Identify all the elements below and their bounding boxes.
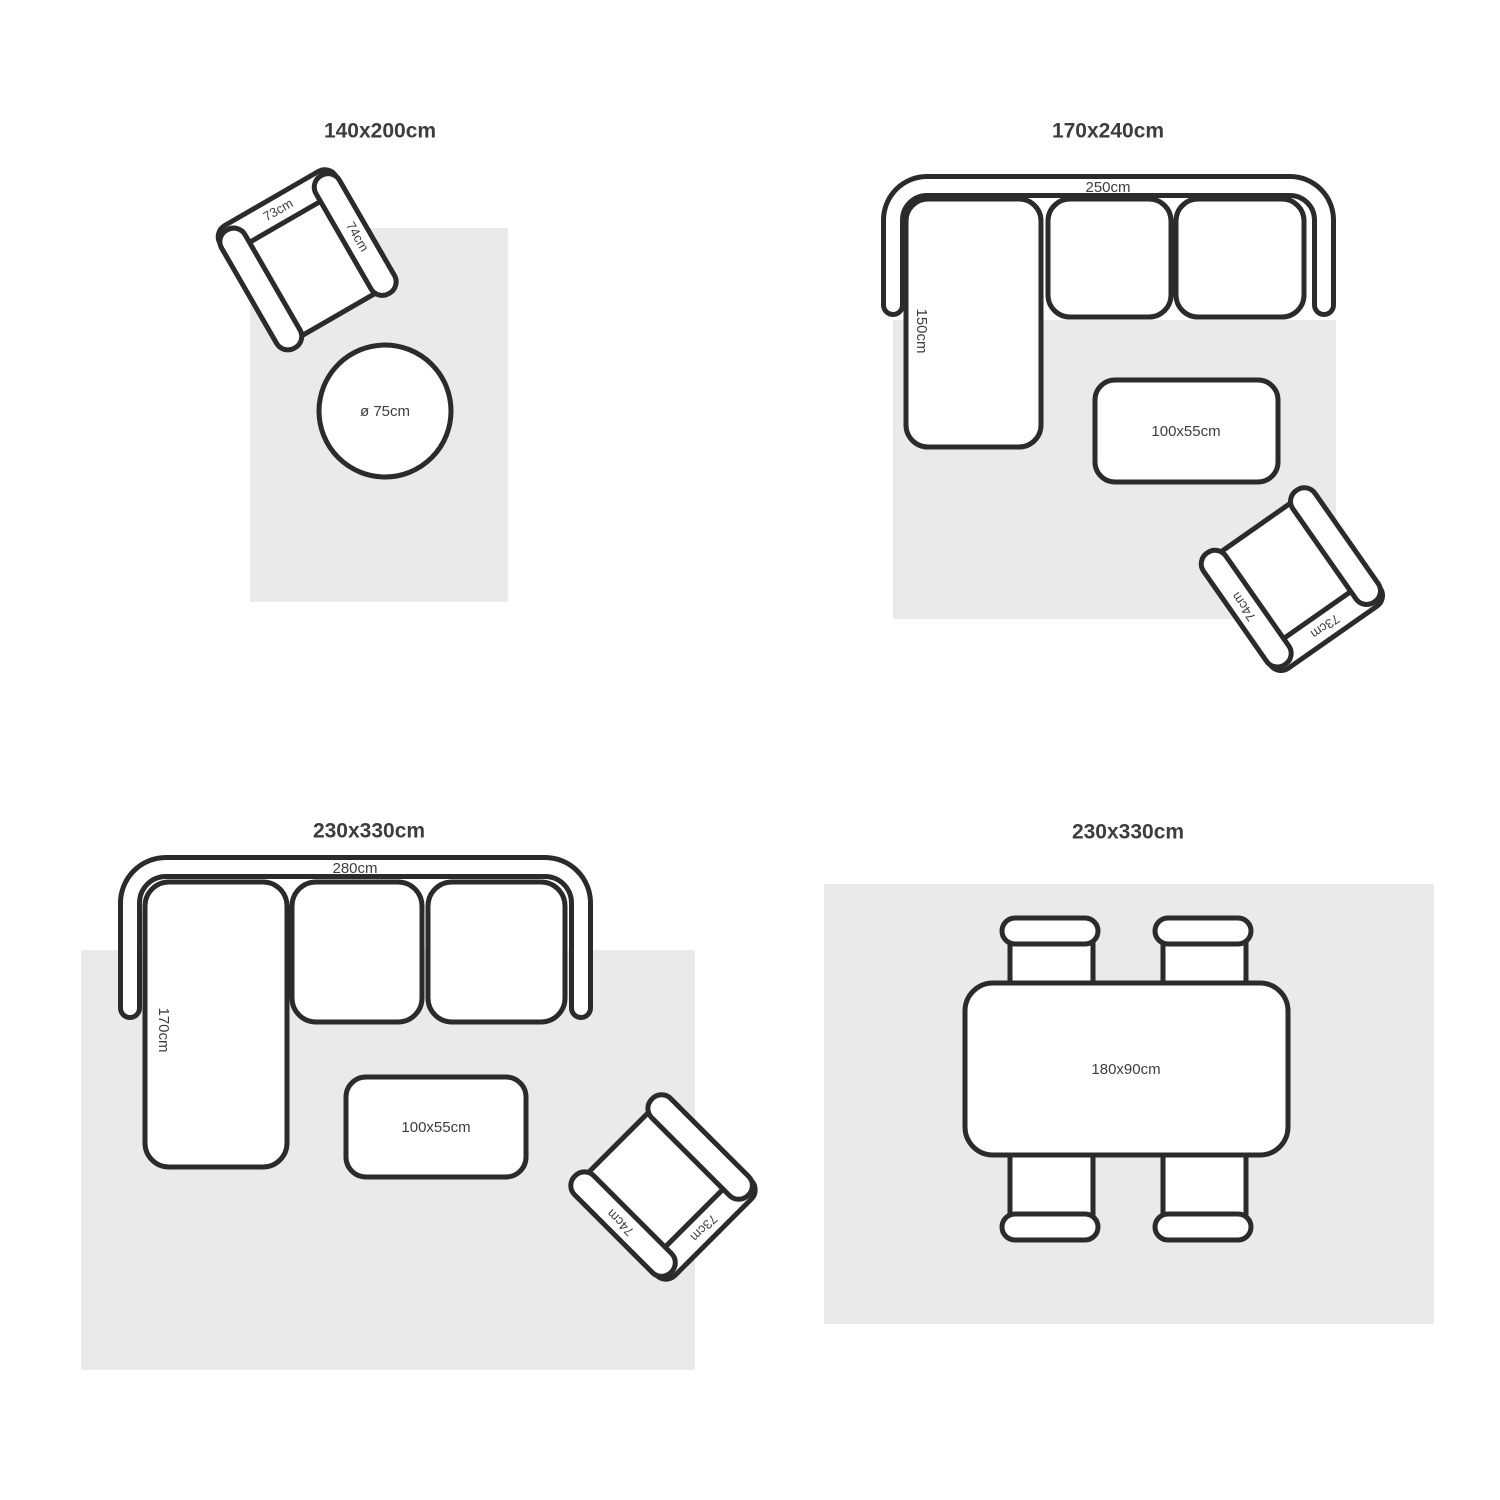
- dining-chair-seat: [1010, 1154, 1093, 1218]
- sofa-seat-cushion: [292, 882, 422, 1022]
- sofa-chaise-dimension: 170cm: [155, 1007, 172, 1052]
- dining-chair-backrest: [1002, 1214, 1098, 1240]
- rug-size-guide-canvas: 140x200cm 73cm 74cm ø 75cm 170x240cm 250…: [0, 0, 1500, 1500]
- round-side-table: ø 75cm: [319, 345, 451, 477]
- sofa-chaise-dimension: 150cm: [913, 308, 930, 353]
- rug-size-title: 230x330cm: [1072, 821, 1184, 844]
- rug-size-guide-diagram: 140x200cm 73cm 74cm ø 75cm 170x240cm 250…: [0, 0, 1500, 1500]
- sofa-seat-cushion: [1176, 199, 1304, 317]
- dining-chair-top-left: [1002, 918, 1098, 984]
- sofa-seat-cushion: [1048, 199, 1171, 317]
- quadrant-140x200: 140x200cm 73cm 74cm ø 75cm: [213, 120, 508, 602]
- coffee-table: 100x55cm: [346, 1077, 526, 1177]
- dining-chair-seat: [1163, 1154, 1246, 1218]
- coffee-table: 100x55cm: [1095, 380, 1278, 482]
- quadrant-230x330-dining: 230x330cm 180x90cm: [824, 821, 1434, 1324]
- round-table-dimension: ø 75cm: [360, 403, 410, 420]
- sofa-width-dimension: 250cm: [1085, 179, 1130, 196]
- dining-chair-top-right: [1155, 918, 1251, 984]
- dining-chair-bottom-left: [1002, 1154, 1098, 1240]
- quadrant-170x240: 170x240cm 250cm 150cm 100x55cm 73cm 74cm: [893, 120, 1388, 677]
- sofa-seat-cushion: [428, 882, 565, 1022]
- dining-chair-backrest: [1155, 1214, 1251, 1240]
- coffee-table-dimension: 100x55cm: [1151, 423, 1220, 440]
- quadrant-230x330-living: 230x330cm 280cm 170cm 100x55cm 73cm 74cm: [81, 820, 761, 1370]
- dining-table-dimension: 180x90cm: [1091, 1061, 1160, 1078]
- dining-chair-backrest: [1155, 918, 1251, 944]
- dining-chair-backrest: [1002, 918, 1098, 944]
- rug-size-title: 140x200cm: [324, 120, 436, 143]
- rug-size-title: 230x330cm: [313, 820, 425, 843]
- rug-size-title: 170x240cm: [1052, 120, 1164, 143]
- coffee-table-dimension: 100x55cm: [401, 1119, 470, 1136]
- dining-chair-bottom-right: [1155, 1154, 1251, 1240]
- sofa-width-dimension: 280cm: [332, 860, 377, 877]
- dining-table: 180x90cm: [965, 983, 1288, 1155]
